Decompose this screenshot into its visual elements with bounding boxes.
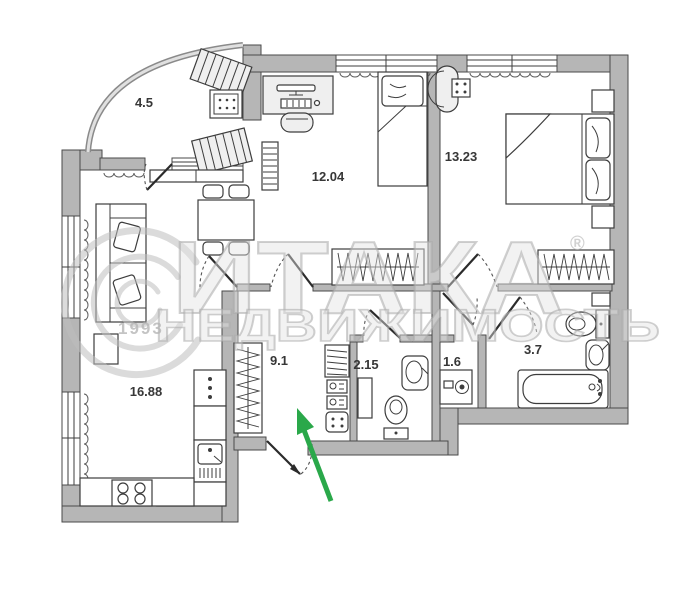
side-table-icon [210,90,242,118]
side-table-icon [452,79,470,97]
chair-icon [203,185,223,198]
kitchen-sink-icon [194,440,226,482]
chair-icon [229,185,249,198]
nightstand-icon [592,90,614,112]
window-icon [62,392,80,485]
room-label-balcony: 4.5 [135,95,153,110]
single-bed-icon [378,72,427,186]
room-label-bedroom-child: 12.04 [312,169,345,184]
bathtub-icon [518,370,608,408]
watermark-year: 1993 [118,319,164,338]
entrance-door-icon [267,441,312,475]
double-bed-icon [506,114,614,204]
room-label-hallway: 9.1 [270,353,288,368]
kitchen-counter-icon [194,406,226,440]
stove-icon [112,480,152,506]
room-label-storage: 1.6 [443,354,461,369]
radiator-icon [84,220,88,320]
window-icon [336,55,437,72]
wardrobe-icon [234,343,262,433]
toilet-icon [384,396,408,439]
watermark: ИТАКА ® НЕДВИЖИМОСТЬ 1993 [65,220,660,375]
room-label-bathroom-small: 2.15 [353,357,378,372]
radiator-icon [84,394,88,484]
office-chair-icon [281,113,313,132]
radiator-icon [470,73,550,77]
floor-plan-svg: ИТАКА ® НЕДВИЖИМОСТЬ 1993 4.5 12.04 13.2… [0,0,699,601]
washing-machine-icon [440,370,472,404]
room-label-kitchen-living: 16.88 [130,384,163,399]
desk-computer-icon [263,76,333,114]
radiator-icon [104,173,144,177]
watermark-subtitle: НЕДВИЖИМОСТЬ [155,300,660,351]
watermark-registered: ® [570,233,585,255]
window-icon [467,55,557,72]
appliance-icon [327,380,347,393]
room-label-bedroom-master: 13.23 [445,149,478,164]
fridge-icon [194,370,226,406]
cabinet-icon [358,378,372,418]
shelf-icon [262,142,278,190]
stool-icon [326,412,348,432]
washbasin-icon [402,356,428,390]
nightstand-icon [592,206,614,228]
room-label-bathroom-large: 3.7 [524,342,542,357]
floor-plan-canvas: ИТАКА ® НЕДВИЖИМОСТЬ 1993 4.5 12.04 13.2… [0,0,699,601]
appliance-icon [327,396,347,409]
